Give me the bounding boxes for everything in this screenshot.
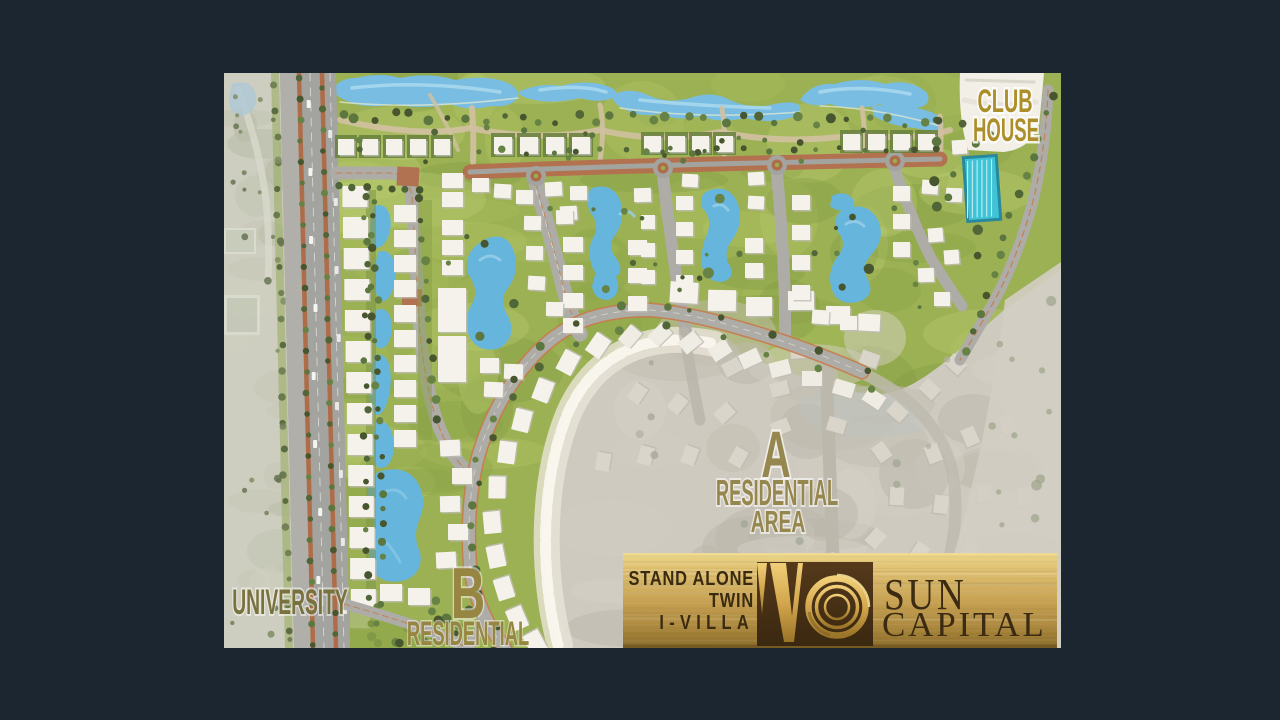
svg-text:STAND ALONE: STAND ALONE	[629, 566, 754, 589]
svg-text:TWIN: TWIN	[709, 588, 754, 611]
svg-text:CAPITAL: CAPITAL	[882, 605, 1047, 644]
svg-text:I-VILLA: I-VILLA	[659, 610, 754, 633]
